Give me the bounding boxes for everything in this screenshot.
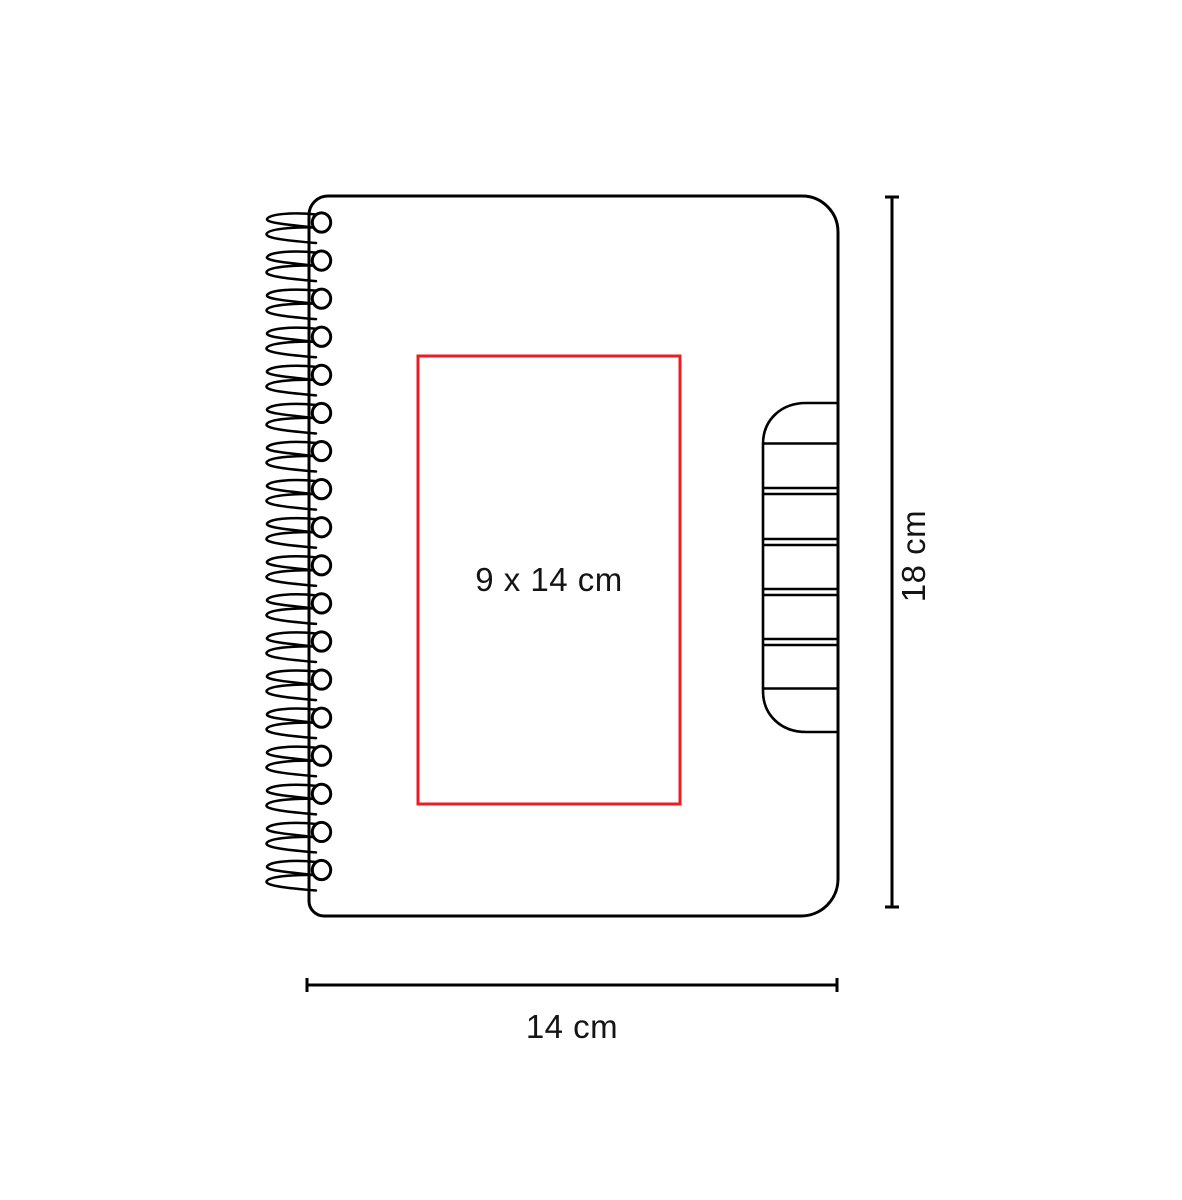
height-dimension-label: 18 cm [895, 510, 933, 602]
notebook-outline [309, 196, 838, 916]
product-dimension-diagram: 9 x 14 cm 18 cm 14 cm [0, 0, 1182, 1200]
width-dimension-label: 14 cm [526, 1008, 618, 1046]
width-dimension-line [307, 978, 837, 992]
print-area-label: 9 x 14 cm [475, 561, 623, 599]
